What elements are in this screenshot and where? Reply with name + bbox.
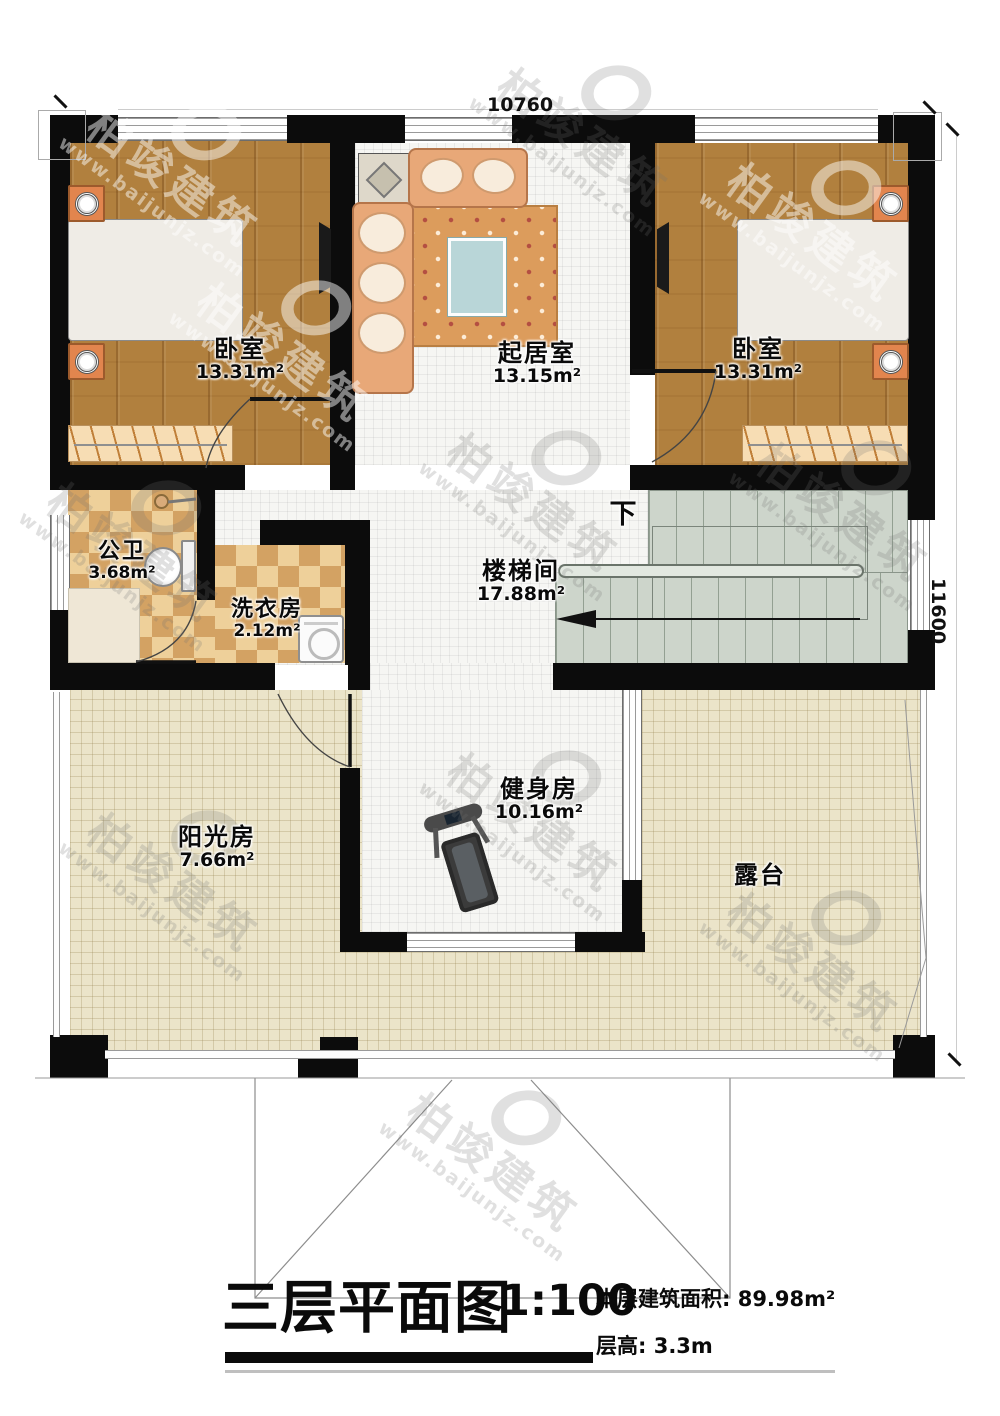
title-rule-gray bbox=[225, 1370, 835, 1373]
wall-low-left-a bbox=[50, 663, 275, 690]
dim-line-right bbox=[956, 135, 957, 1060]
stair-direction-line bbox=[596, 618, 860, 620]
wall-top-3 bbox=[512, 115, 695, 143]
dimension-right: 11600 bbox=[927, 578, 949, 644]
wall-left-2 bbox=[50, 610, 70, 665]
dim-tick bbox=[53, 94, 67, 108]
dim-tick bbox=[945, 122, 959, 136]
room-label-terrace: 露台 bbox=[670, 862, 850, 888]
wardrobe-right bbox=[742, 425, 908, 462]
room-name: 卧室 bbox=[668, 336, 848, 362]
sofa-cushion bbox=[358, 312, 406, 354]
room-name: 卧室 bbox=[150, 336, 330, 362]
drawing-title: 三层平面图 bbox=[222, 1262, 512, 1344]
wall-low-left-b bbox=[348, 663, 370, 690]
sofa-cushion bbox=[358, 212, 406, 254]
wall-mid-left-b bbox=[330, 465, 355, 490]
window-bedroom-right bbox=[695, 117, 878, 141]
wall-right-2 bbox=[908, 490, 935, 520]
shower-head-icon bbox=[154, 494, 169, 509]
room-name: 露台 bbox=[670, 862, 850, 888]
window-gym-bottom bbox=[407, 932, 575, 952]
terrace-glass-right bbox=[920, 690, 927, 1037]
room-name: 阳光房 bbox=[127, 824, 307, 850]
tv-bedroom-right bbox=[657, 222, 669, 294]
room-area: 13.15m² bbox=[447, 366, 627, 388]
wall-left-1 bbox=[50, 143, 70, 490]
nightstand bbox=[68, 185, 105, 222]
corner-table bbox=[358, 153, 410, 207]
dimension-top: 10760 bbox=[487, 94, 553, 116]
room-label-living: 起居室 13.15m² bbox=[447, 340, 627, 388]
table-lamp-icon bbox=[366, 162, 403, 199]
lamp-icon bbox=[75, 192, 99, 216]
room-area: 10.16m² bbox=[449, 802, 629, 824]
room-name: 起居室 bbox=[447, 340, 627, 366]
stair-direction-arrow bbox=[556, 610, 596, 628]
coffee-table bbox=[448, 238, 506, 316]
wall-corner-bl bbox=[50, 1035, 108, 1078]
nightstand bbox=[68, 343, 105, 380]
stair-down-label: 下 bbox=[600, 500, 648, 530]
room-label-bathroom: 公卫 3.68m² bbox=[52, 540, 192, 584]
nightstand bbox=[872, 185, 909, 222]
dim-extension-box-tl bbox=[38, 110, 86, 160]
dim-extension-box-tr bbox=[893, 112, 942, 161]
terrace-glass-bottom bbox=[105, 1050, 895, 1059]
wall-mid-right bbox=[630, 465, 908, 490]
bed-right bbox=[737, 219, 909, 341]
room-area: 7.66m² bbox=[127, 850, 307, 872]
wall-bathroom-right bbox=[197, 490, 215, 600]
wall-laundry-right bbox=[345, 520, 370, 665]
wall-stair-bottom bbox=[553, 663, 908, 690]
room-name: 公卫 bbox=[52, 540, 192, 564]
wall-corner-br bbox=[893, 1035, 935, 1078]
lamp-icon bbox=[75, 350, 99, 374]
wall-gym-right-low bbox=[622, 880, 642, 952]
watermark-logo-icon bbox=[477, 1079, 576, 1157]
room-label-bedroom-right: 卧室 13.31m² bbox=[668, 336, 848, 384]
wardrobe-left bbox=[68, 425, 233, 462]
room-area: 13.31m² bbox=[668, 362, 848, 384]
room-name: 楼梯间 bbox=[431, 558, 611, 584]
lamp-icon bbox=[879, 350, 903, 374]
room-label-sunroom: 阳光房 7.66m² bbox=[127, 824, 307, 872]
sink-counter bbox=[68, 588, 140, 663]
wall-right-1 bbox=[908, 143, 935, 490]
nightstand bbox=[872, 343, 909, 380]
room-name: 健身房 bbox=[449, 776, 629, 802]
tv-bedroom-left bbox=[319, 222, 331, 294]
room-area: 13.31m² bbox=[150, 362, 330, 384]
floor-area-text: 本层建筑面积: 89.98m² bbox=[596, 1283, 835, 1313]
wall-laundry-top bbox=[260, 520, 345, 545]
window-bedroom-left bbox=[118, 117, 287, 141]
room-name: 洗衣房 bbox=[197, 598, 337, 622]
wall-gym-bottom-left bbox=[340, 932, 407, 952]
down-text: 下 bbox=[600, 500, 648, 530]
title-rule-black bbox=[225, 1352, 593, 1363]
dim-tick bbox=[947, 1052, 961, 1066]
wall-living-bed-right bbox=[630, 115, 655, 375]
sunroom-glass-left bbox=[53, 692, 60, 1037]
room-area: 17.88m² bbox=[431, 584, 611, 606]
bed-left bbox=[68, 219, 243, 341]
sofa-cushion bbox=[358, 262, 406, 304]
treadmill-arm bbox=[433, 828, 440, 858]
lamp-icon bbox=[879, 192, 903, 216]
window-living bbox=[405, 117, 512, 141]
hall-gap-floor bbox=[370, 663, 553, 693]
room-label-laundry: 洗衣房 2.12m² bbox=[197, 598, 337, 642]
room-label-gym: 健身房 10.16m² bbox=[449, 776, 629, 824]
room-label-bedroom-left: 卧室 13.31m² bbox=[150, 336, 330, 384]
wall-mid-left-a bbox=[50, 465, 245, 490]
room-area: 3.68m² bbox=[52, 564, 192, 584]
floor-plan-canvas: 10760 11600 卧室 13.31m² 起居室 13.15m² 卧室 13… bbox=[0, 0, 1000, 1416]
wall-gym-left bbox=[340, 768, 360, 935]
room-area: 2.12m² bbox=[197, 622, 337, 642]
room-label-stairwell: 楼梯间 17.88m² bbox=[431, 558, 611, 606]
floor-height-text: 层高: 3.3m bbox=[596, 1330, 713, 1360]
treadmill-belt bbox=[440, 831, 500, 913]
